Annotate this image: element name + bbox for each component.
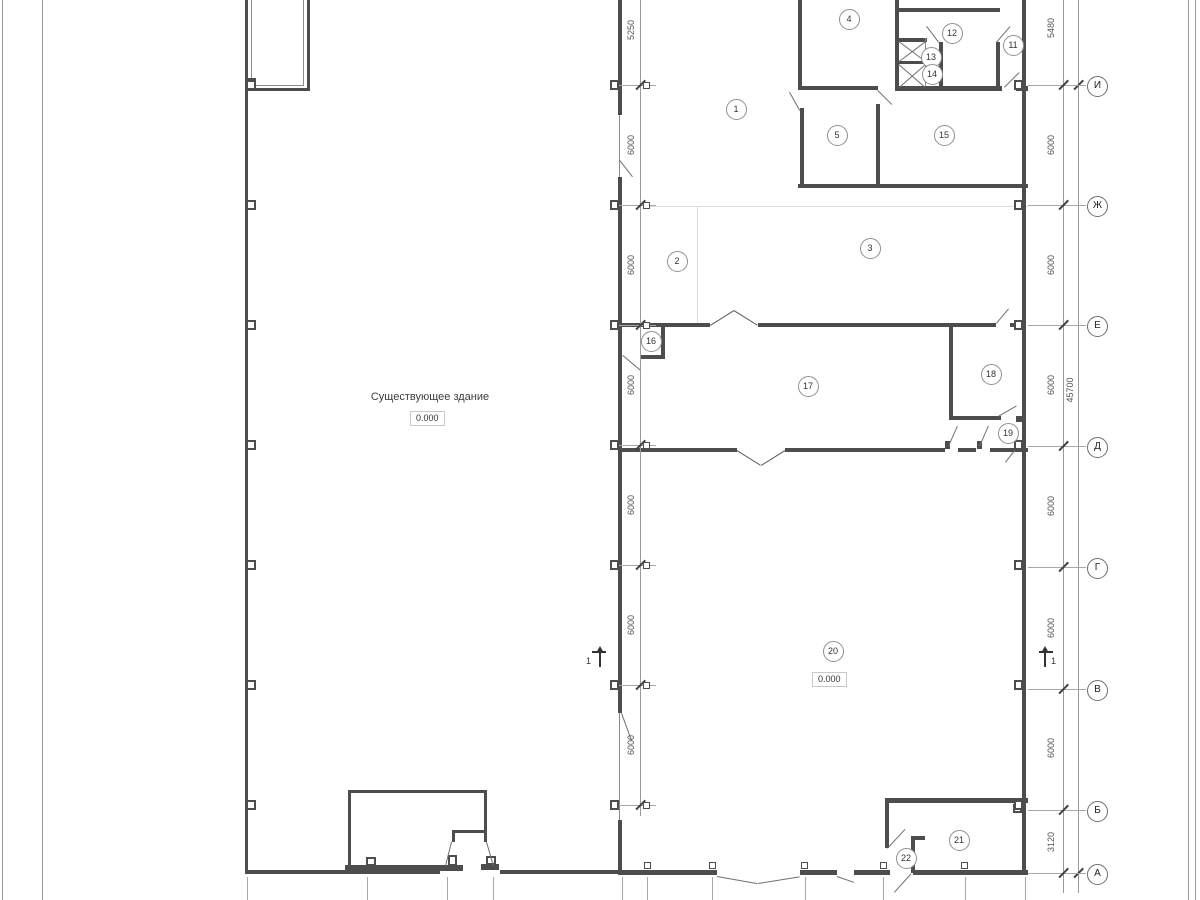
axis-extension-line [1028, 873, 1086, 874]
dimension-label: 6000 [626, 127, 636, 163]
room-number: 16 [641, 331, 662, 352]
section-mark-label: 1 [586, 656, 591, 666]
bottom-wall [618, 870, 717, 875]
column-mark [709, 862, 716, 869]
elevation-mark: 0.000 [410, 411, 445, 426]
room12-right-wall [996, 42, 1000, 90]
wall-pilaster [1014, 440, 1023, 450]
axis-extension-line [1028, 689, 1086, 690]
door-swing [979, 426, 989, 447]
extension-line [367, 877, 368, 900]
dimension-label: 6000 [1046, 610, 1056, 646]
door-swing [948, 426, 958, 447]
room-number: 21 [949, 830, 970, 851]
room-number: 17 [798, 376, 819, 397]
dimension-label: 6000 [626, 367, 636, 403]
wall-pilaster [610, 680, 619, 690]
porch-inner-wall [452, 830, 455, 842]
wall-pilaster [246, 800, 256, 810]
room-number: 20 [823, 641, 844, 662]
door-swing [717, 876, 758, 884]
wall-pilaster [246, 320, 256, 330]
axis-bubble: Д [1087, 437, 1108, 458]
annex-inner-line [251, 0, 252, 86]
section-arrow-icon [1041, 646, 1049, 653]
dimension-label: 6000 [626, 247, 636, 283]
dimension-label: 6000 [1046, 730, 1056, 766]
gate-opening-line [733, 310, 757, 326]
door-swing [894, 873, 911, 892]
door-swing [996, 308, 1009, 323]
room-number: 22 [896, 848, 917, 869]
annex-right-wall [307, 0, 310, 91]
wall-pilaster [610, 440, 619, 450]
room-number: 3 [860, 238, 881, 259]
dimension-label: 6000 [1046, 488, 1056, 524]
column-mark [643, 322, 650, 329]
axis-bubble: Б [1087, 801, 1108, 822]
wall-pilaster [246, 80, 256, 90]
top-block-wall [895, 0, 899, 90]
axis-bubble: Е [1087, 316, 1108, 337]
axis-bubble: А [1087, 864, 1108, 885]
extension-line [647, 877, 648, 900]
axis-extension-line [1028, 810, 1086, 811]
central-wall [618, 820, 622, 872]
room-number: 18 [981, 364, 1002, 385]
extension-line [883, 877, 884, 900]
top-block-bottom-wall [895, 86, 1002, 91]
extension-line [712, 877, 713, 900]
gate-opening-line [736, 450, 760, 466]
room5-left-wall [800, 108, 804, 187]
column-mark [961, 862, 968, 869]
extension-line [965, 877, 966, 900]
room-number: 1 [726, 99, 747, 120]
wall-pilaster [610, 560, 619, 570]
bottom-wall [800, 870, 837, 875]
dimension-label: 6000 [626, 487, 636, 523]
wall-pilaster [246, 680, 256, 690]
underlay-line [645, 206, 1028, 207]
elevation-mark: 0.000 [812, 672, 847, 687]
window-line [619, 115, 620, 177]
bottom-wall [854, 870, 890, 875]
wall-pilaster [1014, 560, 1023, 570]
underlay-line [697, 207, 698, 323]
wall-pilaster [366, 857, 376, 866]
dimension-label: 6000 [626, 607, 636, 643]
extension-line [805, 877, 806, 900]
dimension-line-left [640, 0, 641, 816]
wall-pilaster [610, 200, 619, 210]
room-number: 19 [998, 423, 1019, 444]
room5-top-wall [798, 86, 878, 90]
bottom-wall [913, 870, 1028, 875]
sheet-frame-line [42, 0, 43, 900]
dimension-label: 6000 [1046, 367, 1056, 403]
hall17-bottom-wall [958, 448, 976, 452]
axis-extension-line [1028, 567, 1086, 568]
room5-15-divider-wall [876, 104, 880, 187]
window-line [619, 713, 620, 820]
wall-pilaster [246, 440, 256, 450]
dimension-label: 3120 [1046, 824, 1056, 860]
building-label: Существующее здание [340, 391, 520, 403]
room-number: 12 [942, 23, 963, 44]
room21-left-wall [885, 798, 889, 848]
central-wall [618, 177, 622, 448]
room16-bottom-wall [641, 355, 665, 359]
left-exterior-wall [245, 0, 248, 873]
column-mark [644, 862, 651, 869]
wall-pilaster [1014, 200, 1023, 210]
dimension-label: 6000 [626, 727, 636, 763]
door-swing [887, 829, 905, 849]
door-swing [758, 876, 800, 884]
room15-bottom-wall [798, 184, 1028, 188]
bottom-wall [245, 870, 345, 874]
section-mark-line [1044, 652, 1046, 667]
dimension-total-label: 45700 [1065, 368, 1075, 412]
extension-line [622, 877, 623, 900]
wall-pilaster [610, 80, 619, 90]
hall17-bottom-wall [785, 448, 945, 452]
wall-pilaster [1014, 800, 1023, 810]
hall17-top-wall [758, 323, 996, 327]
annex-inner-line [251, 85, 304, 86]
wall-pilaster [1014, 320, 1023, 330]
jamb [1016, 416, 1022, 422]
room-number: 5 [827, 125, 848, 146]
column-mark [801, 862, 808, 869]
door-swing [837, 876, 854, 883]
room-number: 15 [934, 125, 955, 146]
extension-line [1025, 877, 1026, 900]
wall-pilaster [1014, 680, 1023, 690]
column-mark [643, 562, 650, 569]
section-arrow-icon [596, 646, 604, 653]
gate-opening-line [761, 450, 785, 466]
extension-line [493, 877, 494, 900]
axis-extension-line [1028, 205, 1086, 206]
central-wall [618, 0, 622, 115]
axis-bubble: Ж [1087, 196, 1108, 217]
room21-top-wall [885, 798, 1028, 803]
wall-pilaster [448, 855, 457, 866]
top-block-wall [899, 8, 1000, 12]
column-mark [643, 442, 650, 449]
wall-pilaster [246, 560, 256, 570]
wall-pilaster [610, 800, 619, 810]
annex-inner-line [303, 0, 304, 86]
porch-right-wall [484, 790, 487, 842]
section-mark-label: 1 [1051, 656, 1056, 666]
extension-line [247, 877, 248, 900]
dimension-label: 6000 [1046, 127, 1056, 163]
dimension-label: 5250 [626, 12, 636, 48]
section-mark-line [599, 652, 601, 667]
room16-right-wall [661, 325, 665, 356]
axis-extension-line [1028, 325, 1086, 326]
axis-extension-line [1028, 85, 1086, 86]
door-swing [789, 92, 800, 111]
sheet-frame-line [2, 0, 3, 900]
column-mark [643, 82, 650, 89]
door-swing [998, 406, 1017, 417]
axis-bubble: И [1087, 76, 1108, 97]
room4-left-wall [798, 0, 802, 90]
axis-extension-line [1028, 446, 1086, 447]
porch-inner-wall [452, 830, 487, 833]
column-mark [643, 802, 650, 809]
room-number: 2 [667, 251, 688, 272]
gate-opening-line [710, 310, 734, 326]
extension-line [447, 877, 448, 900]
right-exterior-wall [1022, 0, 1026, 874]
room-number: 4 [839, 9, 860, 30]
bottom-wall [500, 870, 618, 874]
column-mark [643, 682, 650, 689]
floor-plan-sheet: 1 1 Существующее здание 0.000 0.000 ИЖЕД… [0, 0, 1200, 900]
door-swing [926, 26, 939, 43]
room18-left-wall [949, 325, 953, 418]
column-mark [643, 202, 650, 209]
room18-bottom-wall [949, 416, 1001, 420]
sheet-frame-line [1188, 0, 1189, 900]
room-number: 14 [922, 64, 943, 85]
wall-pilaster [1014, 80, 1023, 90]
column-mark [880, 862, 887, 869]
porch-left-wall [348, 790, 351, 867]
dimension-label: 6000 [1046, 247, 1056, 283]
room-number: 11 [1003, 35, 1024, 56]
porch-top-wall [348, 790, 487, 793]
wall-pilaster [610, 320, 619, 330]
dimension-label: 5480 [1046, 10, 1056, 46]
wall-pilaster [246, 200, 256, 210]
axis-bubble: В [1087, 680, 1108, 701]
axis-bubble: Г [1087, 558, 1108, 579]
door-swing [877, 90, 892, 105]
central-wall [618, 448, 622, 713]
sheet-frame-line [1195, 0, 1196, 900]
